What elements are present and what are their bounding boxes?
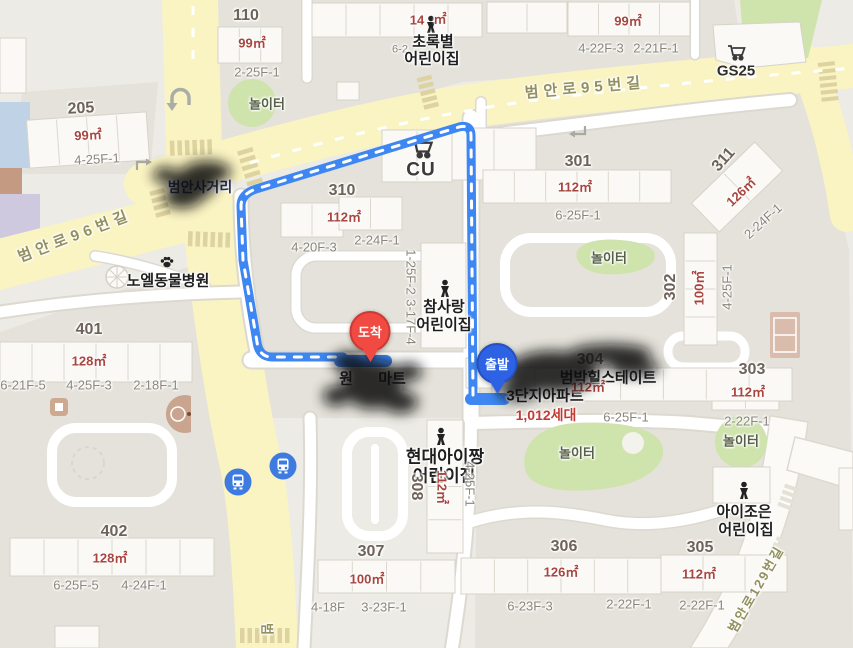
playground-label-4: 놀이터 bbox=[559, 447, 595, 460]
block-green-size-b: ㎡ bbox=[433, 13, 446, 26]
block-307-code-1: 4-18F bbox=[311, 601, 345, 614]
block-301-number: 301 bbox=[565, 154, 592, 170]
departure-pin-tail bbox=[489, 381, 505, 394]
arrival-pin-label: 도착 bbox=[358, 322, 382, 341]
block-110-size: 99㎡ bbox=[238, 37, 265, 50]
daycare-aijoeun-line2[interactable]: 어린이집 bbox=[718, 523, 773, 538]
block-305-size: 112㎡ bbox=[682, 568, 716, 581]
playground-label-2: 놀이터 bbox=[591, 252, 627, 265]
block-303-code: 2-22F-1 bbox=[724, 415, 770, 428]
block-308-code: 4-25F-1 bbox=[464, 461, 477, 507]
block-306-size: 126㎡ bbox=[544, 566, 579, 579]
block-308-number: 308 bbox=[408, 474, 424, 501]
departure-pin-label: 출발 bbox=[485, 354, 509, 373]
arrival-pin-bubble: 도착 bbox=[350, 311, 391, 352]
playground-label-1: 놀이터 bbox=[249, 98, 285, 111]
playground-label-3: 놀이터 bbox=[723, 435, 759, 448]
block-303-size: 112㎡ bbox=[731, 386, 765, 399]
road-beomanro96-label: 범안로96번길 bbox=[16, 207, 134, 264]
block-304-size: 112㎡ bbox=[571, 381, 605, 394]
block-311-size: 126㎡ bbox=[724, 175, 758, 208]
mart-label-part1[interactable]: 원 bbox=[339, 372, 353, 387]
block-307-size: 100㎡ bbox=[350, 573, 385, 586]
map-canvas[interactable]: 11099㎡2-25F-1놀이터14㎡6-2초록별어린이집99㎡4-22F-32… bbox=[0, 0, 853, 648]
block-310-code-1: 4-20F-3 bbox=[291, 241, 337, 254]
block-205-number: 205 bbox=[67, 100, 95, 117]
block-306-code-2: 2-22F-1 bbox=[606, 598, 652, 611]
block-green-size-a: 14 bbox=[410, 14, 424, 27]
daycare-chorokbyeol-line2[interactable]: 어린이집 bbox=[404, 52, 459, 67]
arrival-pin-tail bbox=[362, 349, 378, 362]
road-beomanro95-label: 범안로95번길 bbox=[524, 75, 646, 100]
gs25-label[interactable]: GS25 bbox=[717, 64, 755, 79]
block-301-code: 6-25F-1 bbox=[555, 209, 601, 222]
daycare-aijoeun-line1[interactable]: 아이조은 bbox=[716, 505, 771, 520]
block-310-number: 310 bbox=[329, 183, 356, 199]
block-402-code-1: 6-25F-5 bbox=[53, 579, 99, 592]
block-307-code-2: 3-23F-1 bbox=[361, 601, 407, 614]
block-110-number: 110 bbox=[233, 8, 259, 24]
block-310-code-3: 1-25F-2 bbox=[405, 249, 418, 295]
block-305-number: 305 bbox=[687, 540, 714, 556]
block-401-code-2: 4-25F-3 bbox=[66, 379, 112, 392]
block-306-code-1: 6-23F-3 bbox=[507, 600, 553, 613]
block-303-number: 303 bbox=[739, 362, 766, 378]
block-302-number: 302 bbox=[663, 274, 679, 301]
block-302-size: 100㎡ bbox=[693, 271, 706, 306]
mart-label-part2[interactable]: 마트 bbox=[378, 372, 406, 387]
map-labels-layer: 11099㎡2-25F-1놀이터14㎡6-2초록별어린이집99㎡4-22F-32… bbox=[0, 0, 853, 648]
block-401-code-1: 6-21F-5 bbox=[0, 379, 46, 392]
block-402-number: 402 bbox=[101, 524, 128, 540]
block-401-size: 128㎡ bbox=[72, 355, 107, 368]
departure-pin[interactable]: 출발 bbox=[477, 343, 518, 394]
block-311-code: 2-24F-1 bbox=[742, 201, 785, 241]
arrival-pin[interactable]: 도착 bbox=[350, 311, 391, 362]
block-308-size: 112㎡ bbox=[436, 470, 449, 504]
block-topright-code-1: 4-22F-3 bbox=[578, 42, 624, 55]
block-301-size: 112㎡ bbox=[558, 181, 592, 194]
block-205-size: 99㎡ bbox=[74, 128, 102, 142]
daycare-chamsarang-line2[interactable]: 어린이집 bbox=[416, 318, 471, 333]
departure-pin-bubble: 출발 bbox=[477, 343, 518, 384]
cu-label[interactable]: CU bbox=[406, 161, 435, 180]
daycare-chamsarang-line1[interactable]: 참사랑 bbox=[423, 300, 464, 315]
block-304-code: 6-25F-1 bbox=[603, 411, 649, 424]
block-402-code-2: 4-24F-1 bbox=[121, 579, 167, 592]
block-310-code-2: 2-24F-1 bbox=[354, 234, 400, 247]
daycare-chorokbyeol-line1[interactable]: 초록별 bbox=[412, 35, 453, 50]
intersection-label[interactable]: 범안사거리 bbox=[168, 180, 232, 194]
block-110-code: 2-25F-1 bbox=[234, 66, 280, 79]
animal-hospital-label[interactable]: 노엘동물병원 bbox=[127, 274, 210, 289]
road-beomanro129-label: 범안로129번길 bbox=[726, 544, 786, 635]
block-205-code: 4-25F-1 bbox=[74, 151, 120, 166]
block-401-number: 401 bbox=[76, 322, 103, 338]
block-302-code: 4-25F-1 bbox=[721, 264, 734, 310]
block-306-number: 306 bbox=[551, 539, 578, 555]
block-401-code-3: 2-18F-1 bbox=[133, 379, 179, 392]
block-304-number: 304 bbox=[577, 352, 604, 368]
block-topright-size: 99㎡ bbox=[614, 15, 641, 28]
block-311-number: 311 bbox=[709, 145, 738, 175]
household-count: 1,012세대 bbox=[516, 408, 577, 422]
road-bottom-label: 범 bbox=[261, 623, 274, 637]
block-402-size: 128㎡ bbox=[93, 552, 128, 565]
block-topright-code-2: 2-21F-1 bbox=[633, 42, 679, 55]
block-307-number: 307 bbox=[358, 544, 385, 560]
block-305-code: 2-22F-1 bbox=[679, 599, 725, 612]
block-310-size: 112㎡ bbox=[327, 211, 361, 224]
